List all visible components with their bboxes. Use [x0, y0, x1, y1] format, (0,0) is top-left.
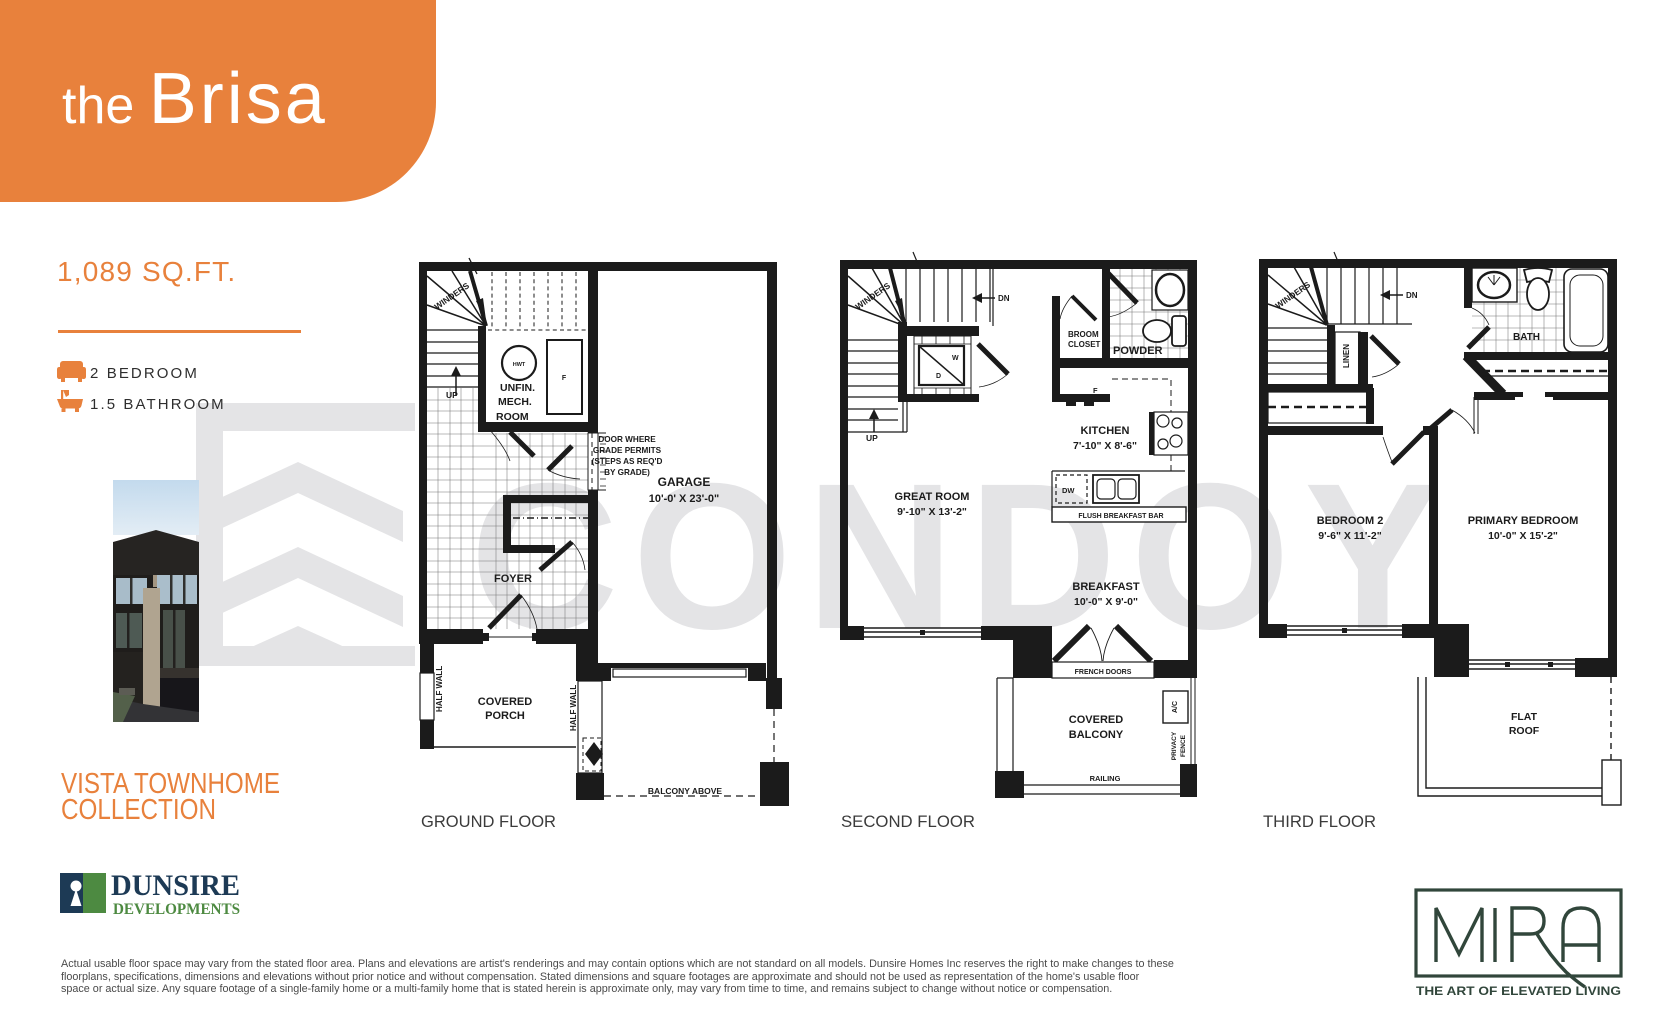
svg-text:PORCH: PORCH [485, 710, 525, 722]
svg-text:FRENCH DOORS: FRENCH DOORS [1075, 669, 1132, 676]
svg-text:RAILING: RAILING [1090, 774, 1121, 783]
svg-text:BALCONY: BALCONY [1069, 729, 1124, 741]
svg-text:10'-0' X 23'-0": 10'-0' X 23'-0" [649, 493, 720, 505]
svg-text:GREAT ROOM: GREAT ROOM [895, 491, 970, 503]
svg-text:BEDROOM 2: BEDROOM 2 [1317, 515, 1384, 527]
svg-text:FLAT: FLAT [1511, 711, 1538, 723]
svg-text:BY GRADE): BY GRADE) [604, 468, 650, 477]
svg-text:SECOND FLOOR: SECOND FLOOR [841, 812, 975, 831]
svg-text:GARAGE: GARAGE [658, 475, 711, 489]
svg-text:GRADE PERMITS: GRADE PERMITS [593, 446, 662, 455]
svg-text:COLLECTION: COLLECTION [61, 794, 216, 825]
svg-text:7'-10" X 8'-6": 7'-10" X 8'-6" [1073, 440, 1137, 452]
svg-text:COVERED: COVERED [1069, 714, 1123, 726]
svg-text:BALCONY ABOVE: BALCONY ABOVE [648, 786, 722, 796]
svg-text:DOOR WHERE: DOOR WHERE [598, 435, 656, 444]
svg-text:ROOM: ROOM [496, 411, 529, 423]
svg-text:MECH.: MECH. [498, 396, 532, 408]
svg-text:DN: DN [1406, 291, 1418, 300]
svg-text:DW: DW [1062, 486, 1075, 495]
svg-text:(STEPS AS REQ'D: (STEPS AS REQ'D [592, 457, 663, 466]
svg-text:F: F [1093, 386, 1098, 395]
svg-text:ROOF: ROOF [1509, 725, 1540, 737]
svg-text:BATH: BATH [1513, 332, 1540, 343]
svg-text:F: F [562, 375, 567, 382]
svg-text:UNFIN.: UNFIN. [500, 382, 535, 394]
svg-text:DN: DN [998, 294, 1010, 303]
svg-text:PRIMARY BEDROOM: PRIMARY BEDROOM [1468, 515, 1579, 527]
svg-text:DEVELOPMENTS: DEVELOPMENTS [113, 901, 240, 918]
svg-text:LINEN: LINEN [1342, 344, 1351, 368]
svg-text:9'-6" X 11'-2": 9'-6" X 11'-2" [1318, 530, 1381, 542]
svg-text:10'-0" X 15'-2": 10'-0" X 15'-2" [1488, 530, 1558, 542]
svg-text:GROUND FLOOR: GROUND FLOOR [421, 812, 556, 831]
svg-text:FOYER: FOYER [494, 573, 532, 585]
svg-text:PRIVACY: PRIVACY [1171, 731, 1178, 760]
svg-text:10'-0" X 9'-0": 10'-0" X 9'-0" [1074, 596, 1138, 608]
svg-text:DUNSIRE: DUNSIRE [111, 869, 240, 901]
svg-text:BREAKFAST: BREAKFAST [1072, 581, 1140, 593]
svg-text:THE ART OF ELEVATED LIVING: THE ART OF ELEVATED LIVING [1416, 986, 1621, 998]
svg-text:UP: UP [446, 390, 458, 400]
svg-text:KITCHEN: KITCHEN [1081, 425, 1130, 437]
svg-text:CLOSET: CLOSET [1068, 340, 1101, 349]
svg-text:UP: UP [866, 433, 878, 443]
svg-text:COVERED: COVERED [478, 696, 532, 708]
svg-text:D: D [936, 373, 941, 380]
svg-text:POWDER: POWDER [1113, 345, 1163, 357]
svg-text:FENCE: FENCE [1180, 734, 1187, 757]
svg-text:FLUSH BREAKFAST BAR: FLUSH BREAKFAST BAR [1078, 513, 1163, 520]
svg-text:9'-10" X 13'-2": 9'-10" X 13'-2" [897, 506, 967, 518]
svg-text:HWT: HWT [513, 362, 526, 368]
svg-text:HALF WALL: HALF WALL [435, 666, 444, 712]
svg-text:BROOM: BROOM [1068, 330, 1099, 339]
svg-text:W: W [952, 355, 959, 362]
svg-text:THIRD FLOOR: THIRD FLOOR [1263, 812, 1376, 831]
svg-text:A/C: A/C [1172, 701, 1179, 713]
svg-text:HALF WALL: HALF WALL [569, 685, 578, 731]
